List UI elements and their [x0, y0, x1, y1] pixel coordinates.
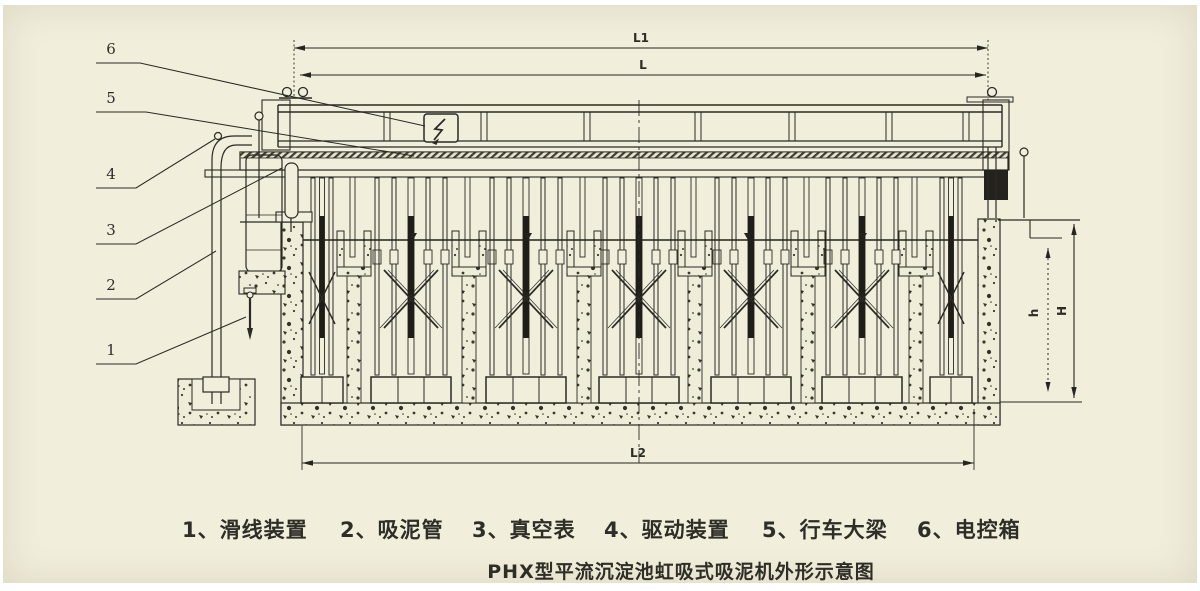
- pipe-cluster: [486, 178, 566, 403]
- truss-post: [886, 112, 892, 141]
- carriage-rail-beam: [205, 170, 1005, 177]
- callout-4: 4: [106, 165, 116, 183]
- legend-item-3: 3、真空表: [472, 518, 576, 542]
- dim-label-h-minor: h: [1027, 309, 1041, 318]
- truss-post: [789, 112, 795, 141]
- dim-label-l2: L2: [630, 446, 646, 460]
- dimension-l: L: [300, 58, 986, 78]
- legend-item-2: 2、吸泥管: [340, 518, 444, 542]
- leader-1: [96, 317, 246, 364]
- diagram-title: PHX型平流沉淀池虹吸式吸泥机外形示意图: [487, 560, 874, 583]
- truss-post: [384, 112, 390, 141]
- callout-3: 3: [106, 221, 116, 239]
- legend-item-4: 4、驱动装置: [604, 518, 730, 542]
- dimension-h-minor: h: [1027, 248, 1051, 392]
- vent-rod-ball: [255, 112, 263, 120]
- tank-floor: [281, 403, 1000, 425]
- end-carriage-left: [262, 100, 290, 150]
- truss-post: [963, 112, 969, 141]
- sludge-trough: [178, 377, 255, 425]
- leader-3: [96, 168, 282, 244]
- tank-right-wall: [978, 219, 1000, 425]
- legend-item-1: 1、滑线装置: [182, 518, 308, 542]
- divider-wall: [899, 177, 933, 403]
- dim-label-l: L: [639, 58, 647, 72]
- legend-item-5: 5、行车大梁: [762, 518, 888, 542]
- divider-wall: [791, 177, 825, 403]
- electric-control-box: [424, 114, 458, 145]
- trolley-wheels-left: [279, 88, 312, 99]
- dim-label-l1: L1: [633, 31, 649, 45]
- divider-wall: [567, 177, 601, 403]
- callout-5: 5: [106, 89, 116, 107]
- suction-pipe-clusters: [301, 178, 972, 403]
- divider-wall: [337, 177, 371, 403]
- callout-leaders: [96, 63, 425, 364]
- truss-post: [584, 112, 590, 141]
- main-girder: [240, 152, 1008, 170]
- pipe-cluster: [371, 178, 451, 403]
- dimension-h-major: H: [1055, 224, 1077, 398]
- legend-item-6: 6、电控箱: [917, 518, 1021, 542]
- callout-numbers: 6 5 4 3 2 1: [106, 40, 116, 359]
- truss-post: [695, 112, 701, 141]
- parts-legend: 1、滑线装置 2、吸泥管 3、真空表 4、驱动装置 5、行车大梁 6、电控箱: [182, 518, 1021, 542]
- phx-machine-outline-drawing: L1 L L2 H h: [0, 0, 1200, 591]
- callout-6: 6: [106, 40, 116, 58]
- tank-left-wall: [281, 222, 303, 425]
- slide-wire-collector: [244, 288, 256, 340]
- callout-1: 1: [106, 341, 116, 359]
- pipe-cluster: [711, 178, 791, 403]
- callout-2: 2: [106, 276, 116, 294]
- truss-post: [481, 112, 487, 141]
- scanned-diagram-page: L1 L L2 H h: [0, 0, 1200, 591]
- pipe-cluster: [930, 178, 972, 403]
- divider-wall: [452, 177, 486, 403]
- pipe-cluster: [822, 178, 902, 403]
- leader-5: [96, 112, 414, 156]
- divider-wall: [678, 177, 712, 403]
- dim-label-h-major: H: [1055, 306, 1069, 316]
- drive-unit-marker: [215, 133, 222, 140]
